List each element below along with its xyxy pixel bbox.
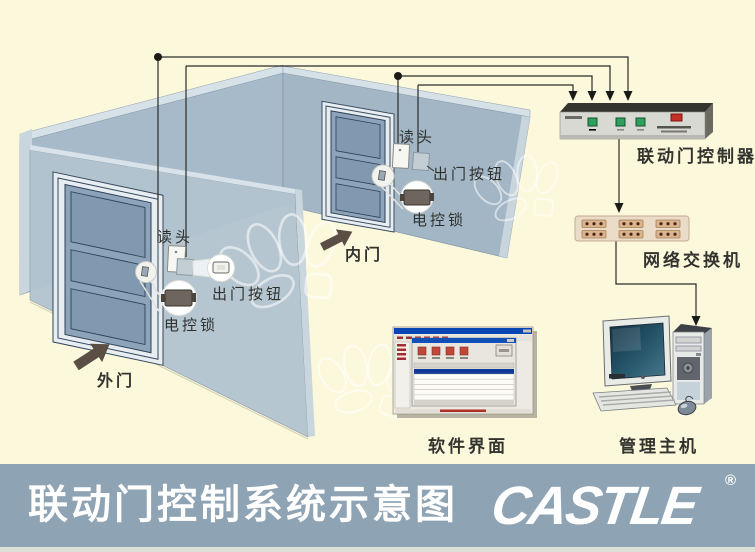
brand-logo: CASTLE ® (492, 474, 722, 538)
status-text-mark (440, 410, 486, 413)
grid-body (414, 374, 514, 400)
network-switch-label: 网络交换机 (643, 246, 743, 271)
controller-model-mark (657, 126, 691, 129)
inner-exit-button-device (412, 152, 429, 170)
controller-label: 联动门控制器 (637, 142, 755, 167)
controller-brand-mark (565, 116, 582, 119)
bottom-edge-strip (0, 547, 755, 552)
inner-reader-device (392, 144, 409, 169)
outer-exit-button-device (177, 259, 194, 276)
outer-reader-label: 读头 (157, 226, 193, 247)
software-ui-label: 软件界面 (428, 432, 508, 457)
tree-panel (395, 342, 410, 408)
controller-power-button (671, 114, 682, 121)
computer-tower (673, 324, 712, 404)
computer-keyboard (593, 388, 676, 411)
title-banner: 联动门控制系统示意图 CASTLE ® (0, 464, 755, 547)
outer-electric-lock-device (165, 290, 192, 306)
outer-lock-label: 电控锁 (164, 314, 218, 335)
inner-reader-label: 读头 (399, 126, 435, 147)
grid-header (414, 363, 514, 368)
diagram-title: 联动门控制系统示意图 (28, 464, 458, 547)
interlock-door-system-diagram: 读头 出门按钮 电控锁 外门 读头 出门按钮 电控锁 内门 联动门控制器 网络交… (0, 0, 755, 552)
grid-footer (414, 400, 514, 405)
door-controller-device (560, 103, 713, 139)
brand-logo-text: CASTLE (488, 474, 701, 538)
junction-dot (394, 72, 402, 80)
inner-electric-lock-device (404, 190, 430, 205)
outer-door-label: 外门 (97, 367, 135, 391)
outer-exit-button-label: 出门按钮 (212, 283, 284, 304)
management-host-label: 管理主机 (619, 432, 699, 457)
wire-inner-reader-to-controller (398, 76, 592, 91)
wire-inner-button-to-controller (418, 85, 573, 91)
management-computer (593, 316, 712, 417)
diagram-canvas (0, 0, 755, 464)
window-titlebar (394, 328, 532, 334)
software-window-preview (393, 327, 537, 418)
inner-exit-button-label: 出门按钮 (433, 163, 505, 184)
network-switch-device (575, 216, 689, 241)
junction-dot (154, 53, 162, 61)
window-buttons (523, 330, 531, 333)
registered-trademark-icon: ® (725, 472, 736, 489)
inner-lock-label: 电控锁 (412, 209, 466, 230)
inner-door-label: 内门 (345, 241, 383, 265)
selected-row (414, 369, 514, 374)
